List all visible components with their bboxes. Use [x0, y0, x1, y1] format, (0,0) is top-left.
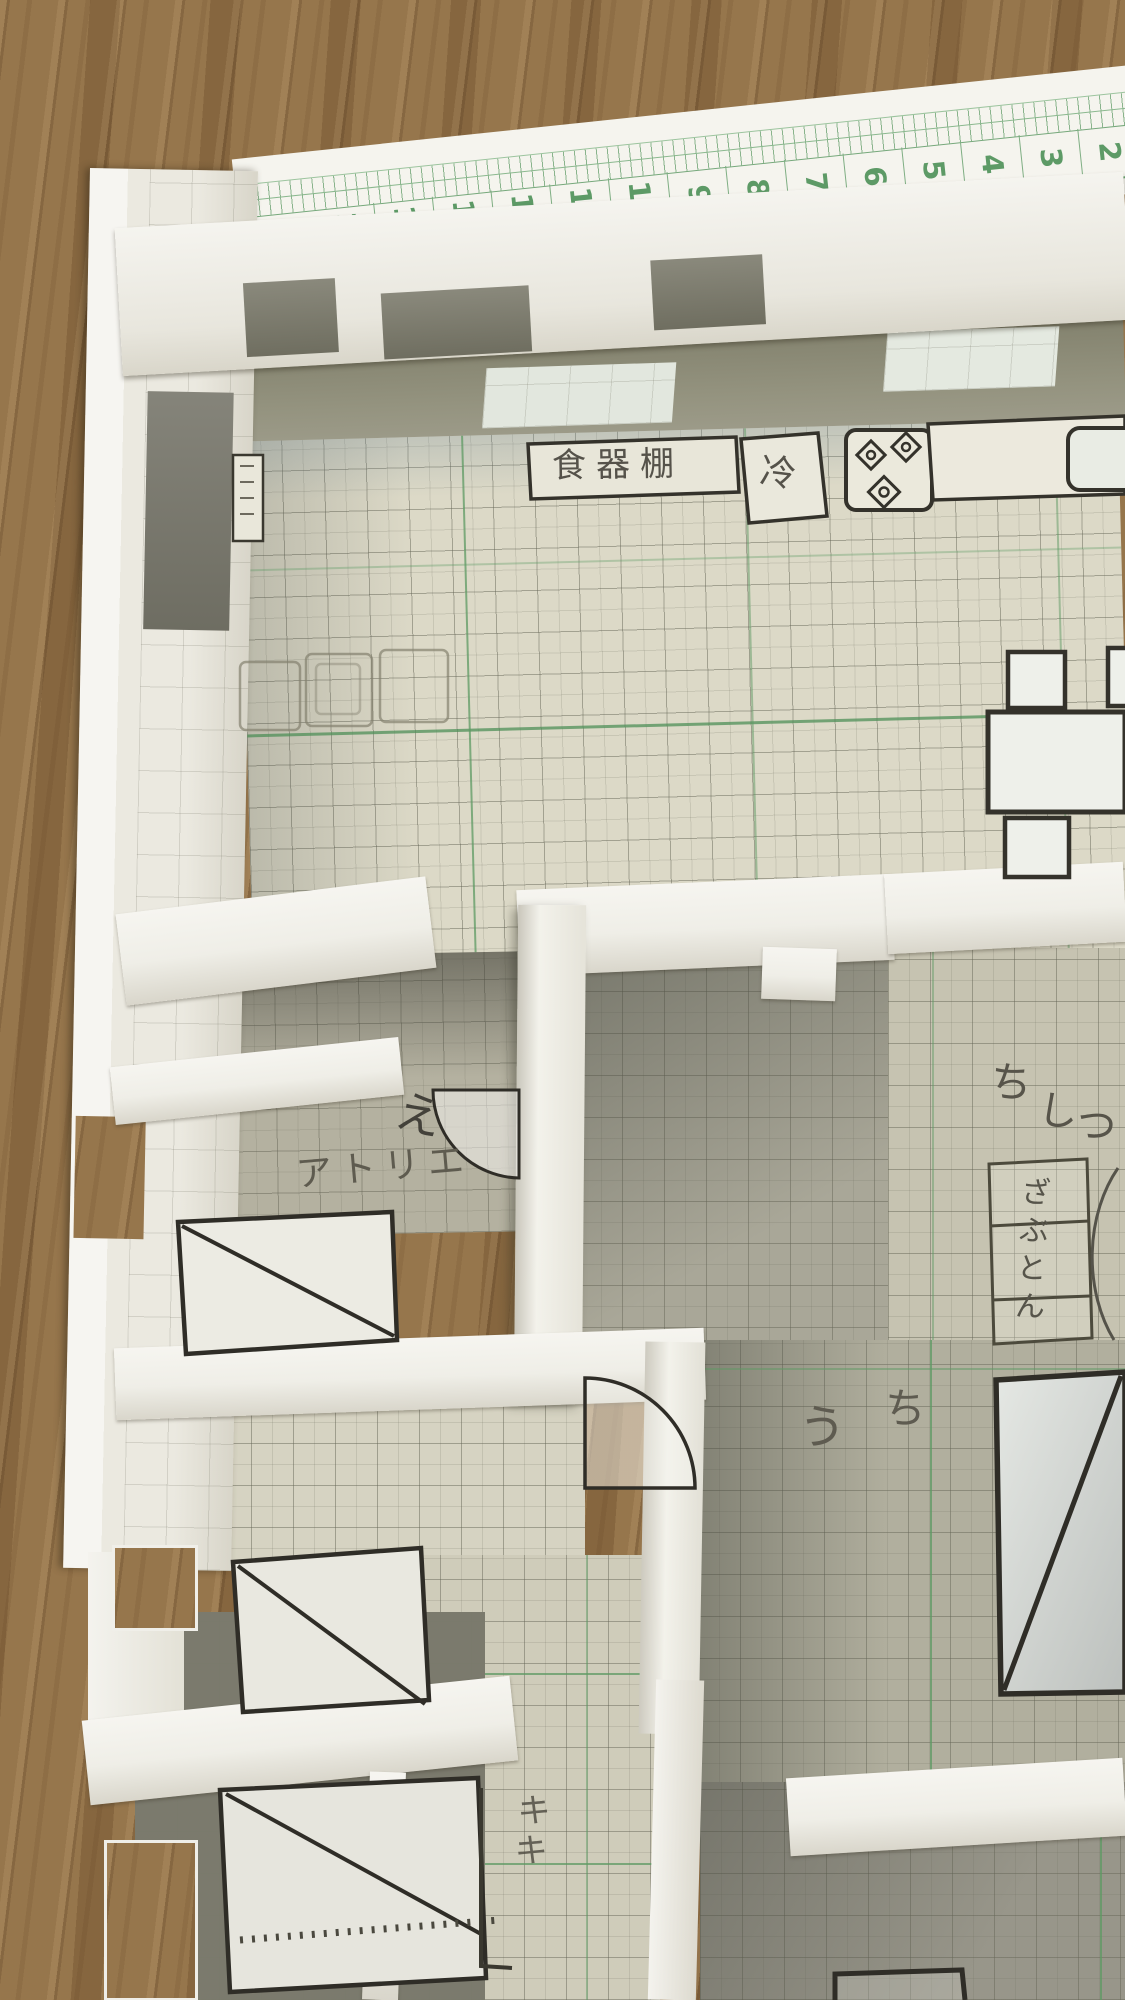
closet-diagonal-box — [996, 1372, 1125, 1694]
door-arc-icon — [585, 1378, 695, 1488]
cushion-label: ざぶとん — [1010, 1175, 1048, 1328]
table-outline — [988, 712, 1125, 812]
stair-diagonal-box — [220, 1778, 486, 1992]
hall-pencil-note: う ち — [796, 1388, 936, 1498]
pencil-sketch-shapes — [240, 650, 448, 730]
stair-diagonal-box — [178, 1212, 397, 1354]
chair-outline — [1008, 652, 1065, 708]
stove-outline — [846, 430, 932, 510]
fridge-label: 冷 — [758, 454, 798, 494]
round-table-arc — [1092, 1168, 1118, 1340]
chair-outline — [1108, 648, 1125, 706]
plan-drawings — [0, 0, 1125, 2000]
cupboard-label: 食器棚 — [552, 447, 685, 483]
bottom-rect-outline — [835, 1970, 965, 2000]
dining-set-outline — [988, 648, 1125, 877]
small-label-box — [233, 455, 263, 541]
sink-outline — [1068, 428, 1125, 490]
photo-paper-house-model: 15 14 13 12 11 10 9 8 7 6 5 4 3 2 — [0, 0, 1125, 2000]
tatami-room-label: ち し つ — [990, 1062, 1125, 1172]
bottom-pencil-marks: キキ — [509, 1791, 548, 1873]
stair-diagonal-box — [233, 1548, 429, 1712]
chair-outline — [1005, 818, 1069, 877]
